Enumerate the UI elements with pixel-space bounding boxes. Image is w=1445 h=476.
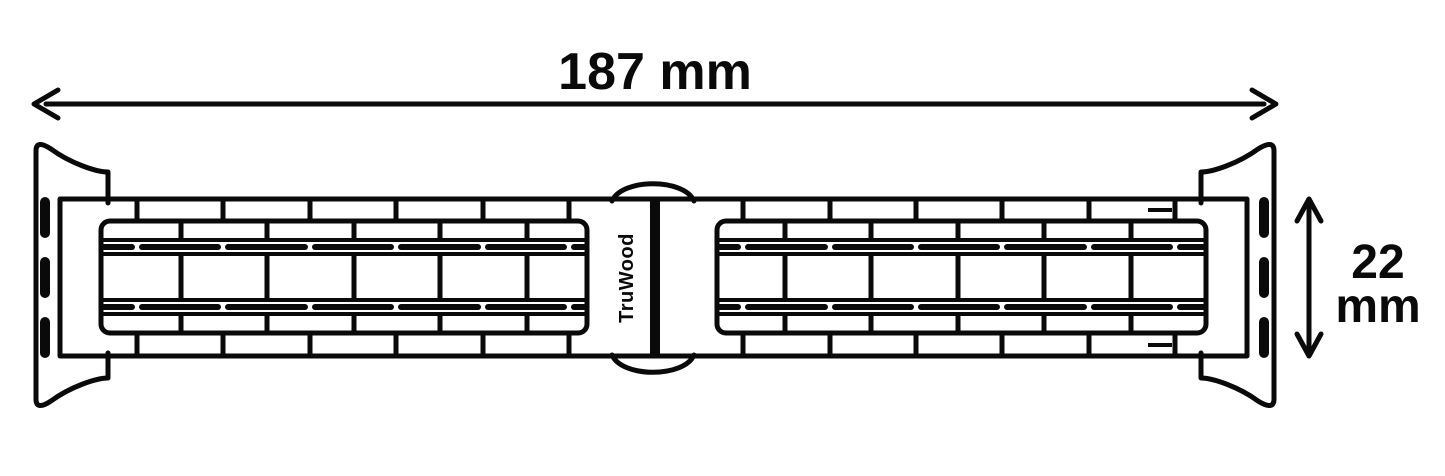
left-band-links <box>101 201 587 354</box>
width-dimension: 22 mm <box>1297 199 1421 356</box>
width-dimension-unit: mm <box>1335 280 1420 333</box>
band-dimension-diagram: 187 mm <box>0 0 1445 476</box>
adapter-slot <box>1259 257 1269 298</box>
right-adapter <box>1201 144 1274 405</box>
diagram-canvas: 187 mm <box>0 0 1445 476</box>
length-dimension: 187 mm <box>34 43 1276 118</box>
adapter-slot <box>1259 197 1269 238</box>
adapter-slot <box>40 197 50 238</box>
link-panel <box>101 221 587 333</box>
clasp: TruWood <box>612 184 694 373</box>
clasp-seam-bar <box>650 199 660 356</box>
adapter-slot <box>1259 317 1269 358</box>
adapter-slot <box>40 257 50 298</box>
adapter-slot <box>40 317 50 358</box>
left-adapter <box>36 144 108 405</box>
brand-logo-text: TruWood <box>616 233 638 323</box>
length-dimension-label: 187 mm <box>558 43 752 101</box>
right-band-links <box>717 201 1206 354</box>
